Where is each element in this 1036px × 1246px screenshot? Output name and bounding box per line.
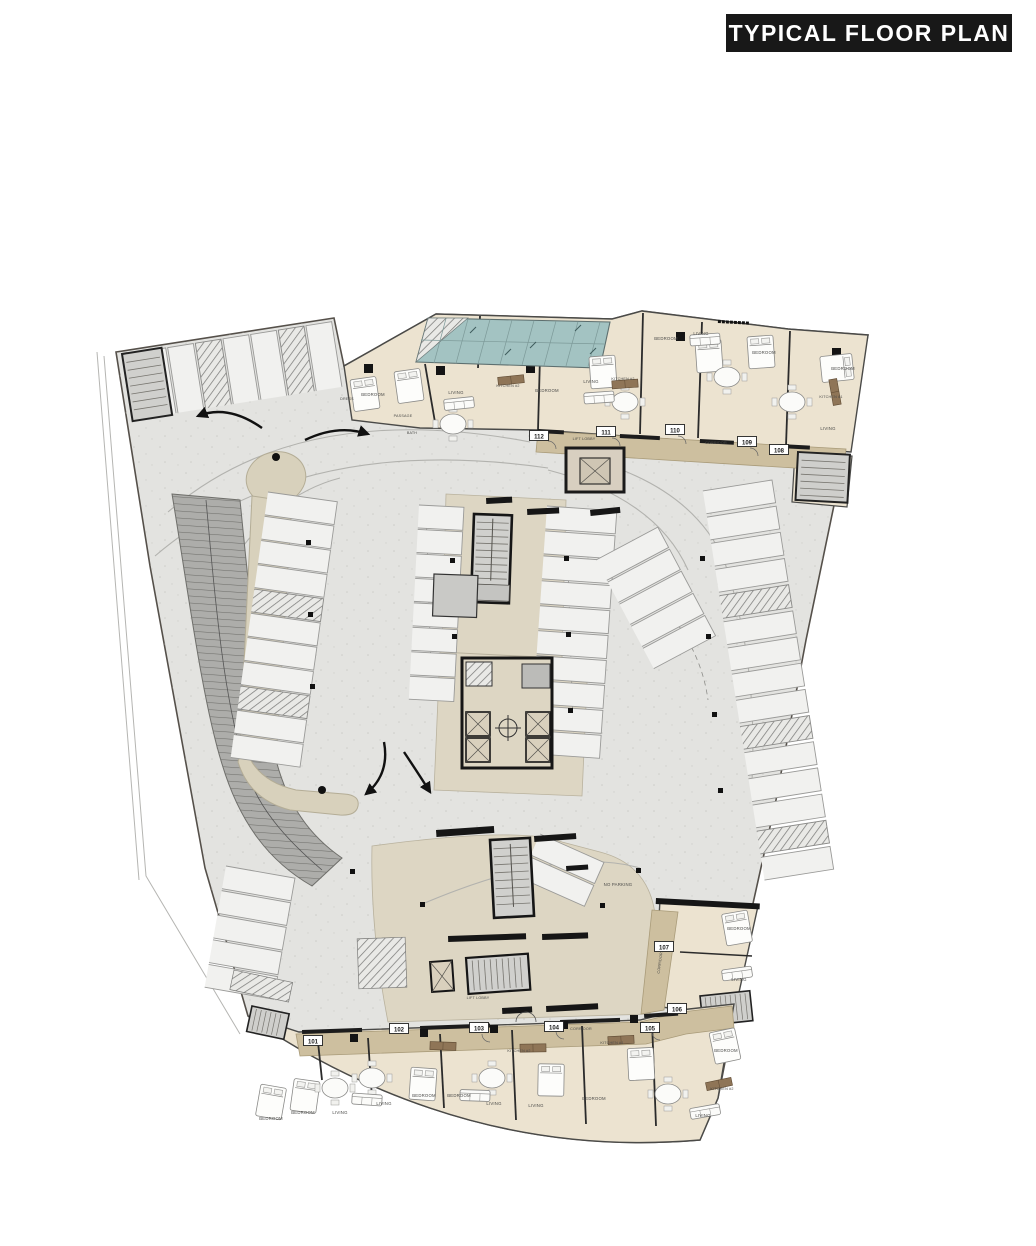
- room-label: LIVING: [731, 977, 747, 982]
- room-label: LIVING: [528, 1103, 544, 1108]
- unit-label-112: 112: [530, 431, 549, 441]
- island-column: [272, 453, 280, 461]
- svg-text:106: 106: [672, 1008, 683, 1014]
- room-label: BEDROOM: [582, 1096, 606, 1101]
- area-label-lift-lobby: LIFT LOBBY: [467, 996, 490, 1000]
- svg-text:104: 104: [549, 1026, 560, 1032]
- unit-label-108: 108: [770, 445, 789, 455]
- svg-text:108: 108: [774, 449, 785, 455]
- svg-text:112: 112: [534, 435, 544, 441]
- svg-text:102: 102: [394, 1028, 405, 1034]
- area-label-lift-lobby: LIFT LOBBY: [573, 437, 596, 441]
- room-label: KITCHEN #2: [507, 1049, 530, 1053]
- unit-label-111: 111: [597, 427, 616, 437]
- room-label: BEDROOM: [361, 392, 385, 397]
- unit-label-102: 102: [390, 1024, 409, 1034]
- top-lift-lobby: [566, 448, 624, 492]
- room-label: KITCHEN #2: [611, 377, 634, 381]
- room-label: BEDROOM: [412, 1093, 436, 1098]
- room-label: KITCHEN #1: [600, 1041, 623, 1045]
- svg-text:111: 111: [601, 431, 611, 437]
- room-label: LIVING: [820, 426, 836, 431]
- lift-core: [462, 658, 552, 768]
- svg-text:110: 110: [670, 429, 680, 435]
- skylight-glazing: [416, 318, 610, 368]
- room-label: PASSAGE: [394, 414, 413, 418]
- area-label-no-parking: NO PARKING: [604, 882, 633, 887]
- svg-text:109: 109: [742, 441, 753, 447]
- room-label: BEDROOM: [654, 336, 678, 341]
- room-label: KITCHEN #2: [710, 1087, 733, 1091]
- lift-2: [466, 738, 490, 762]
- small-lift: [430, 960, 454, 991]
- room-label: BATH: [407, 431, 417, 435]
- unit-label-104: 104: [545, 1022, 564, 1032]
- stair-top-right: [795, 452, 849, 503]
- room-label: DRESS: [340, 397, 354, 401]
- page: TYPICAL FLOOR PLAN: [0, 0, 1036, 1246]
- svg-text:103: 103: [474, 1027, 485, 1033]
- svg-text:101: 101: [308, 1040, 319, 1046]
- room-label: LIVING: [583, 379, 599, 384]
- service-shaft: [466, 662, 492, 686]
- area-label-corridor: CORRIDOR: [705, 441, 727, 445]
- island-column: [318, 786, 326, 794]
- room-label: BEDROOM: [447, 1093, 471, 1098]
- room-label: BEDROOM: [535, 388, 559, 393]
- service-room: [522, 664, 550, 688]
- svg-text:107: 107: [659, 946, 670, 952]
- room-label: LIVING: [693, 331, 709, 336]
- room-label: BEDROOM: [259, 1116, 283, 1121]
- room-label: LIVING: [486, 1101, 502, 1106]
- unit-label-106: 106: [668, 1004, 687, 1014]
- svg-text:105: 105: [645, 1027, 656, 1033]
- room-label: LIVING: [376, 1101, 392, 1106]
- unit-label-107: 107: [655, 942, 674, 952]
- lift-1: [466, 712, 490, 736]
- room-label: LIVING: [695, 1113, 711, 1118]
- unit-label-101: 101: [304, 1036, 323, 1046]
- room-label: LIVING: [448, 390, 464, 395]
- unit-label-109: 109: [738, 437, 757, 447]
- room-label: KITCHEN #1: [819, 395, 842, 399]
- unit-label-110: 110: [666, 425, 685, 435]
- unit-label-103: 103: [470, 1023, 489, 1033]
- room-label: BEDROOM: [831, 366, 855, 371]
- area-label-corridor: CORRIDOR: [570, 1027, 592, 1031]
- room-label: LIVING: [332, 1110, 348, 1115]
- lift-3: [526, 712, 550, 736]
- unit-label-105: 105: [641, 1023, 660, 1033]
- room-label: BEDROOM: [727, 926, 751, 931]
- room-label: BEDROOM: [752, 350, 776, 355]
- room-label: BEDROOM: [291, 1110, 315, 1115]
- floor-plan-drawing: 112 111 110 109 108 107 106 105 104 103 …: [0, 0, 1036, 1246]
- lift-4: [526, 738, 550, 762]
- room-label: KITCHEN #2: [496, 384, 519, 388]
- room-label: BEDROOM: [714, 1048, 738, 1053]
